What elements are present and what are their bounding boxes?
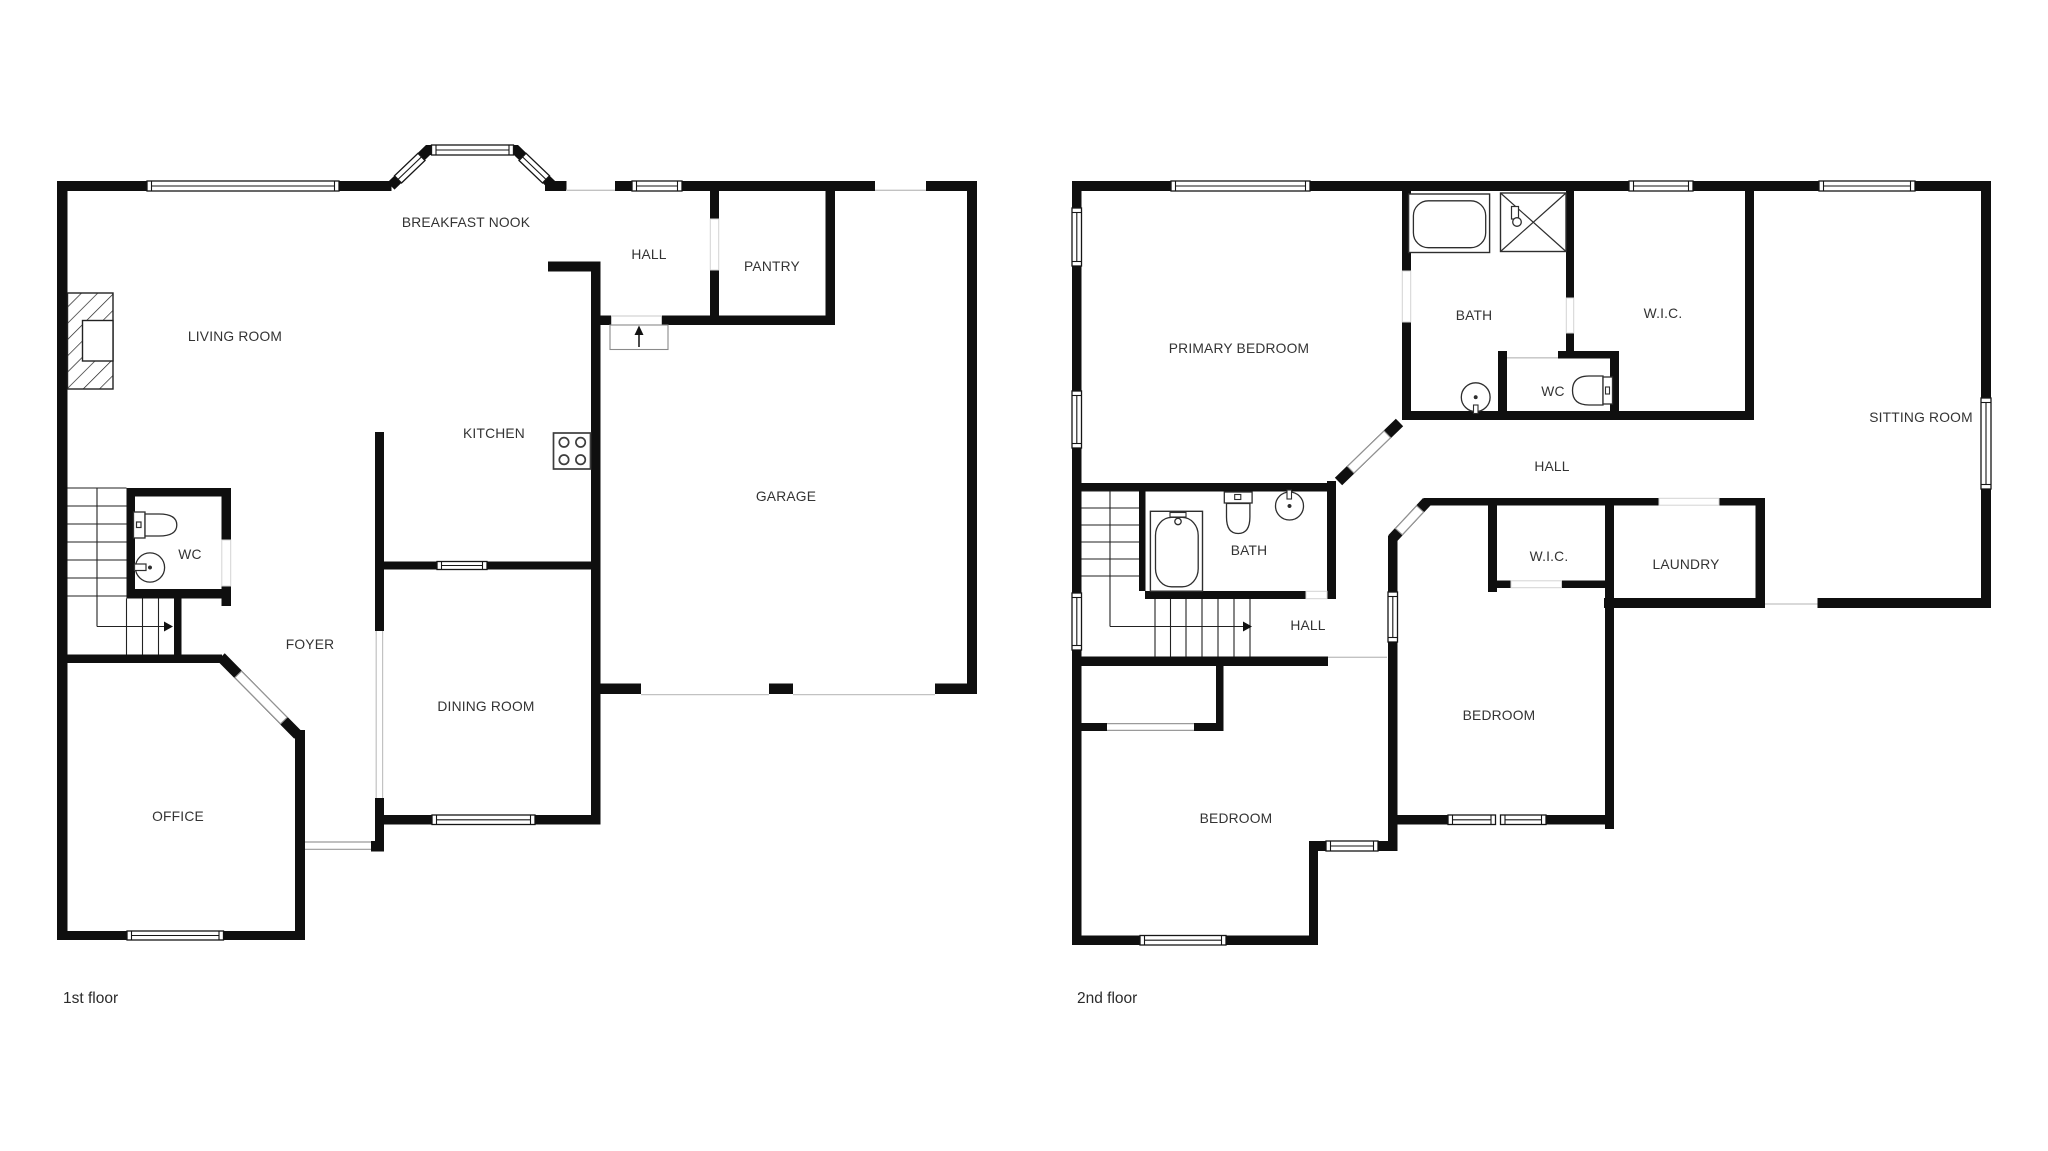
svg-text:2nd floor: 2nd floor bbox=[1077, 990, 1137, 1007]
svg-text:BATH: BATH bbox=[1456, 308, 1493, 323]
svg-text:WC: WC bbox=[1541, 384, 1564, 399]
svg-text:OFFICE: OFFICE bbox=[152, 809, 204, 824]
svg-text:WC: WC bbox=[178, 547, 201, 562]
svg-text:HALL: HALL bbox=[1534, 459, 1569, 474]
svg-text:BEDROOM: BEDROOM bbox=[1463, 708, 1536, 723]
svg-text:W.I.C.: W.I.C. bbox=[1644, 306, 1683, 321]
svg-text:PRIMARY BEDROOM: PRIMARY BEDROOM bbox=[1169, 341, 1309, 356]
svg-text:BATH: BATH bbox=[1231, 543, 1268, 558]
svg-text:HALL: HALL bbox=[1290, 618, 1325, 633]
svg-text:W.I.C.: W.I.C. bbox=[1530, 549, 1569, 564]
svg-text:LIVING ROOM: LIVING ROOM bbox=[188, 329, 282, 344]
svg-text:SITTING ROOM: SITTING ROOM bbox=[1869, 410, 1973, 425]
svg-text:1st floor: 1st floor bbox=[63, 990, 118, 1007]
svg-text:FOYER: FOYER bbox=[286, 637, 335, 652]
svg-text:BREAKFAST NOOK: BREAKFAST NOOK bbox=[402, 215, 531, 230]
svg-text:BEDROOM: BEDROOM bbox=[1200, 811, 1273, 826]
svg-text:LAUNDRY: LAUNDRY bbox=[1652, 557, 1719, 572]
svg-text:HALL: HALL bbox=[631, 247, 666, 262]
svg-text:KITCHEN: KITCHEN bbox=[463, 426, 525, 441]
svg-text:PANTRY: PANTRY bbox=[744, 259, 800, 274]
svg-text:DINING ROOM: DINING ROOM bbox=[437, 699, 534, 714]
svg-text:GARAGE: GARAGE bbox=[756, 489, 816, 504]
